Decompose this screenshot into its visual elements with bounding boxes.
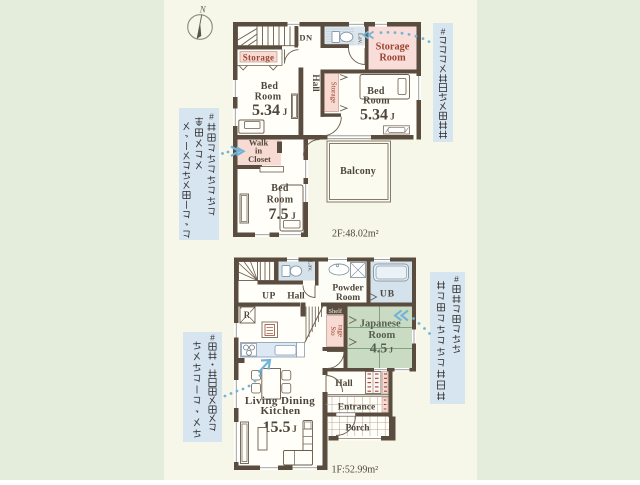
svg-text:Lav.: Lav. bbox=[307, 260, 314, 272]
svg-text:5.34: 5.34 bbox=[252, 102, 280, 119]
svg-text:Entrance: Entrance bbox=[338, 403, 375, 413]
svg-text:Room: Room bbox=[363, 96, 390, 107]
svg-text:4.5: 4.5 bbox=[370, 342, 388, 357]
svg-text:Bed: Bed bbox=[271, 183, 289, 194]
svg-text:rageSto: rageSto bbox=[329, 325, 345, 337]
svg-text:2F:48.02m²: 2F:48.02m² bbox=[332, 229, 379, 240]
svg-text:Storage: Storage bbox=[330, 82, 338, 103]
svg-text:J: J bbox=[291, 211, 296, 221]
svg-text:Room: Room bbox=[379, 52, 406, 63]
svg-text:Hall: Hall bbox=[310, 74, 320, 92]
svg-text:1F:52.99m²: 1F:52.99m² bbox=[332, 465, 379, 476]
svg-text:Shelf: Shelf bbox=[328, 308, 343, 315]
svg-text:R: R bbox=[244, 310, 251, 320]
svg-text:N: N bbox=[199, 5, 207, 15]
svg-text:Storage: Storage bbox=[376, 42, 410, 53]
svg-text:UP: UP bbox=[262, 292, 276, 302]
svg-text:Room: Room bbox=[336, 293, 360, 303]
svg-text:#: # bbox=[209, 112, 214, 122]
svg-text:#: # bbox=[210, 333, 215, 343]
svg-text:Balcony: Balcony bbox=[340, 166, 376, 177]
svg-text:Lav.: Lav. bbox=[357, 33, 364, 45]
svg-text:Kitchen: Kitchen bbox=[260, 405, 300, 417]
svg-text:J: J bbox=[389, 346, 393, 355]
svg-text:Closet: Closet bbox=[248, 154, 271, 164]
svg-text:Storage: Storage bbox=[243, 52, 275, 62]
svg-text:J: J bbox=[390, 112, 395, 122]
svg-text:#: # bbox=[454, 274, 459, 284]
svg-text:Hall: Hall bbox=[287, 292, 305, 302]
svg-text:5.34: 5.34 bbox=[360, 107, 388, 124]
svg-text:Room: Room bbox=[267, 195, 294, 206]
svg-text:J: J bbox=[292, 424, 297, 434]
svg-text:7.5: 7.5 bbox=[269, 206, 289, 223]
svg-text:UB: UB bbox=[380, 290, 395, 300]
svg-text:DN: DN bbox=[299, 33, 313, 43]
svg-text:Japanese: Japanese bbox=[360, 319, 401, 330]
svg-text:J: J bbox=[283, 107, 288, 117]
svg-text:#: # bbox=[441, 26, 446, 36]
svg-text:Porch: Porch bbox=[345, 424, 370, 434]
svg-text:Room: Room bbox=[368, 330, 395, 341]
svg-text:Bed: Bed bbox=[261, 81, 279, 92]
svg-text:Powder: Powder bbox=[332, 284, 364, 294]
svg-text:Room: Room bbox=[255, 92, 282, 103]
